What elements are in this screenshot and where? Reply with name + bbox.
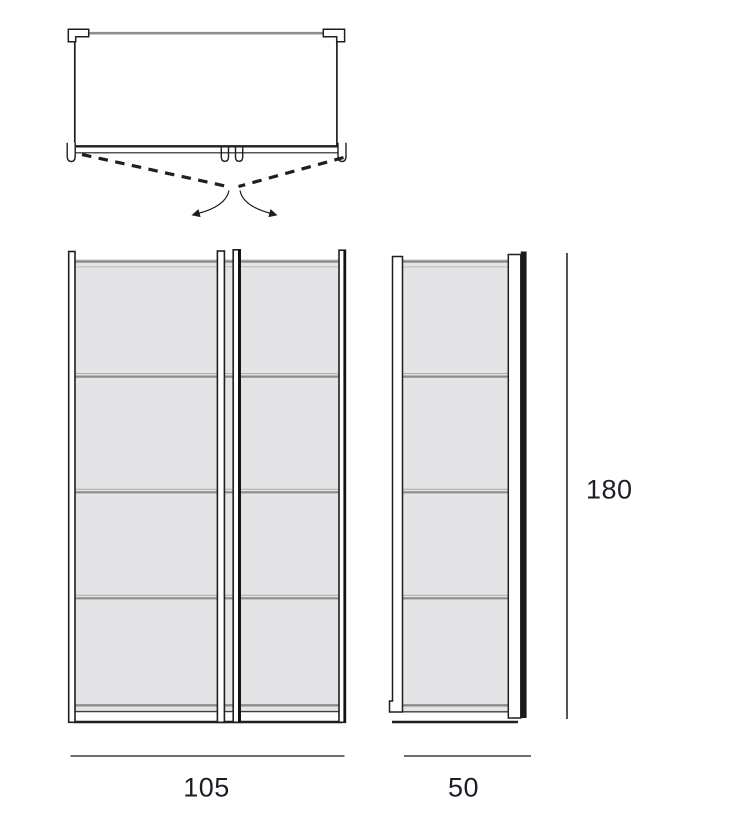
side-panel — [403, 259, 509, 712]
dimension-drawing-page: 105 50 180 — [0, 0, 730, 825]
plan-door-swing-left — [82, 155, 228, 187]
plan-view — [67, 29, 346, 213]
plan-corner-bracket-right-icon — [323, 29, 344, 41]
front-plinth — [72, 712, 343, 721]
depth-dimension-label: 50 — [448, 773, 479, 803]
plan-hinge-left-icon — [67, 143, 75, 162]
side-door-edge — [521, 252, 527, 719]
plan-door-swing-right — [239, 158, 344, 187]
plan-door-handle-right-icon — [236, 148, 243, 162]
dimension-drawing: 105 50 180 — [0, 0, 730, 825]
front-left-stile — [69, 252, 75, 723]
side-front-frame — [508, 255, 521, 719]
plan-corner-bracket-left-icon — [68, 29, 88, 41]
plan-open-arrow-right-icon — [240, 191, 271, 214]
front-right-stile — [339, 250, 345, 722]
front-center-left-stile — [217, 251, 224, 722]
side-plinth — [394, 713, 513, 721]
side-back-frame — [390, 257, 403, 713]
width-dimension-label: 105 — [183, 773, 230, 803]
front-door-panels — [70, 259, 345, 712]
plan-door-handle-left-icon — [221, 148, 228, 162]
side-elevation — [390, 252, 527, 723]
height-dimension-label: 180 — [586, 475, 633, 505]
front-center-right-stile — [233, 250, 240, 723]
front-elevation — [69, 250, 346, 723]
plan-open-arrow-left-icon — [198, 191, 229, 214]
